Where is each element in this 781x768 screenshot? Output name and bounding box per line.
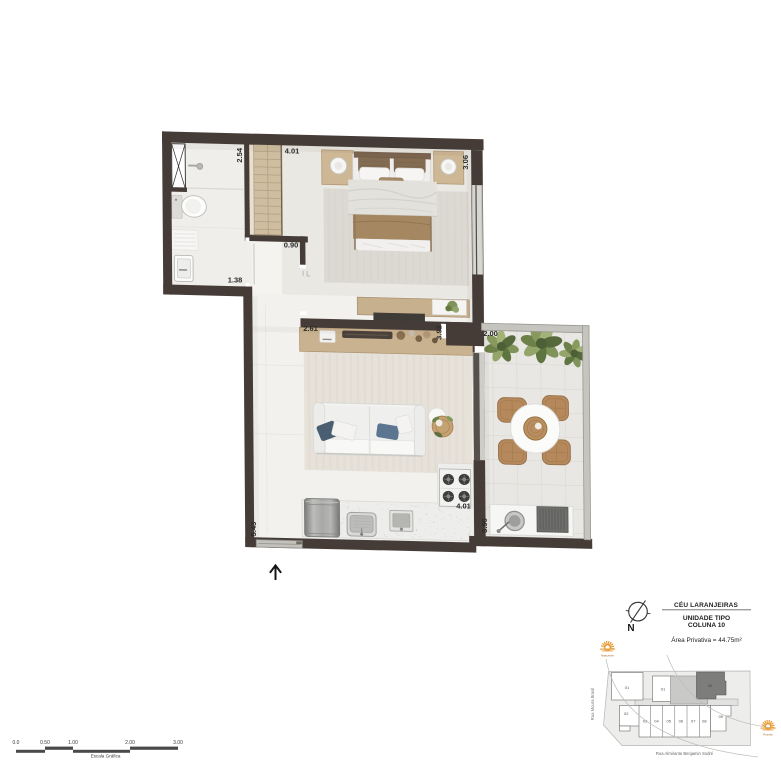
svg-text:10: 10 — [708, 683, 713, 688]
svg-text:01: 01 — [625, 685, 630, 690]
svg-text:Rua Moura Brasil: Rua Moura Brasil — [590, 688, 595, 720]
svg-text:1.00: 1.00 — [68, 740, 78, 746]
svg-text:CÉU LARANJEIRAS: CÉU LARANJEIRAS — [674, 600, 739, 609]
svg-text:02: 02 — [624, 711, 629, 716]
svg-text:08: 08 — [702, 719, 707, 724]
svg-text:1.38: 1.38 — [228, 275, 243, 284]
svg-text:04: 04 — [654, 719, 659, 724]
svg-text:3.06: 3.06 — [461, 155, 470, 170]
svg-text:Área Privativa = 44.75m²: Área Privativa = 44.75m² — [671, 635, 742, 644]
svg-text:COLUNA 10: COLUNA 10 — [688, 622, 725, 629]
svg-text:0.0: 0.0 — [13, 740, 20, 746]
svg-text:0.50: 0.50 — [40, 740, 50, 746]
svg-text:06: 06 — [679, 719, 684, 724]
svg-text:01: 01 — [661, 687, 666, 692]
svg-text:07: 07 — [691, 719, 696, 724]
svg-text:Escala Gráfica: Escala Gráfica — [91, 754, 121, 759]
svg-text:3.92: 3.92 — [434, 325, 443, 340]
svg-text:2.00: 2.00 — [125, 740, 135, 746]
svg-text:2.61: 2.61 — [303, 324, 318, 333]
svg-text:05: 05 — [666, 719, 671, 724]
svg-text:Nascente: Nascente — [601, 654, 614, 658]
svg-text:3.90: 3.90 — [480, 518, 489, 533]
svg-text:2.54: 2.54 — [235, 147, 244, 162]
svg-text:N: N — [627, 623, 634, 634]
svg-text:3.00: 3.00 — [173, 740, 183, 746]
svg-text:Rua Almirante Benjamin Sodré: Rua Almirante Benjamin Sodré — [656, 751, 714, 756]
svg-text:2.00: 2.00 — [483, 329, 498, 338]
svg-text:4.01: 4.01 — [456, 501, 471, 510]
svg-text:0.90: 0.90 — [284, 240, 299, 249]
svg-text:5.43: 5.43 — [249, 522, 258, 537]
svg-text:Poente: Poente — [763, 733, 773, 737]
svg-text:4.01: 4.01 — [285, 146, 300, 155]
